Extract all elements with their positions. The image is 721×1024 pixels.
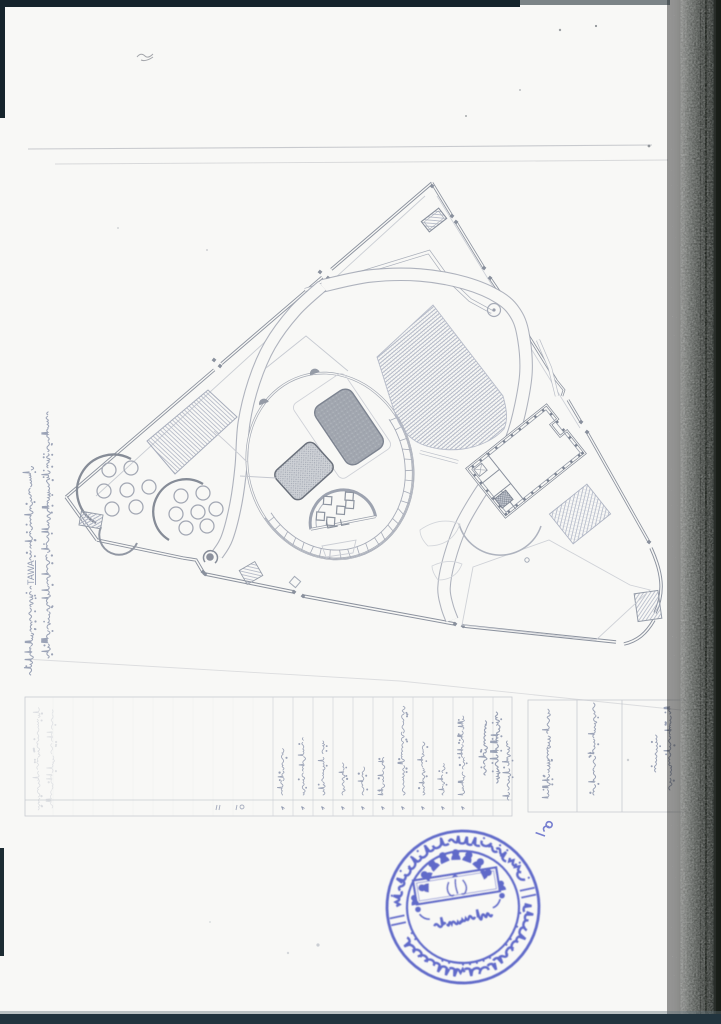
svg-text:TAWA: TAWA [26, 560, 36, 585]
